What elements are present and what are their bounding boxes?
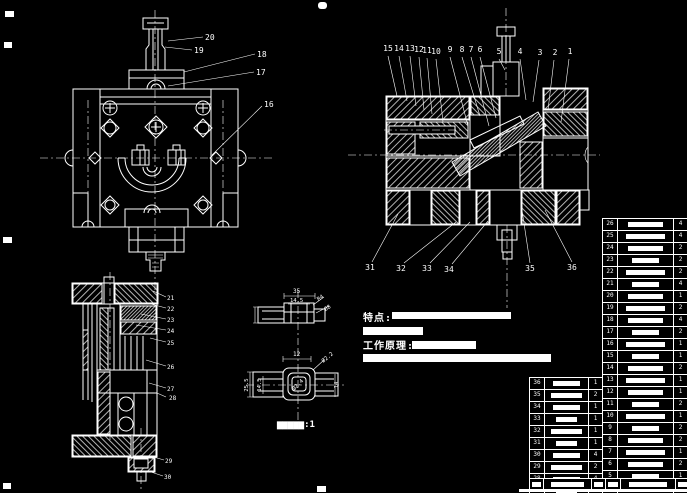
registration-mark (317, 486, 326, 492)
dim-height: 25.5 (244, 378, 250, 391)
detail-view-bottom: 12 Ø2.2 25.5 14.5 14 Ø2.4 ▆▆▆▆▆:1 (244, 348, 344, 430)
registration-mark (3, 237, 12, 243)
callout-24: 24 (167, 328, 175, 335)
bom-row: 21 4 (602, 278, 687, 291)
bom-row: 7 1 (602, 446, 687, 459)
bom-qty: 2 (588, 390, 602, 401)
dim-inner-height: 14.5 (257, 378, 263, 391)
bom-part-number: 13 (603, 375, 618, 386)
bom-part-name-blob (618, 351, 673, 362)
bom-part-name-blob (618, 315, 673, 326)
bom-qty: 4 (588, 450, 602, 461)
callout-6: 6 (478, 45, 483, 54)
redacted-text-bar (412, 341, 476, 349)
bom-row: 31 1 (529, 437, 603, 450)
bom-part-number: 20 (603, 291, 618, 302)
dim-width: 12 (293, 351, 301, 358)
callout-15: 15 (383, 44, 393, 53)
bom-part-name-blob (545, 414, 588, 425)
bom-part-name-blob (618, 219, 673, 230)
redacted-text-bar (392, 312, 511, 319)
bom-row: 32 1 (529, 425, 603, 438)
callout-27: 27 (167, 386, 175, 393)
title-block-frame-edge (519, 489, 687, 492)
bom-part-name-blob (618, 231, 673, 242)
bom-qty: 1 (673, 375, 687, 386)
bom-table-right: 26 4 25 4 24 2 23 2 22 (602, 219, 687, 493)
bom-qty: 2 (673, 303, 687, 314)
bom-part-number: 17 (603, 327, 618, 338)
bom-part-number: 25 (603, 231, 618, 242)
bom-qty: 2 (673, 255, 687, 266)
bom-part-name-blob (545, 378, 588, 389)
bom-part-name-blob (618, 303, 673, 314)
bom-part-number: 9 (603, 423, 618, 434)
bom-row: 14 2 (602, 362, 687, 375)
callout-2: 2 (553, 48, 558, 57)
bom-qty: 4 (673, 315, 687, 326)
bom-part-name-blob (618, 291, 673, 302)
bom-qty: 1 (673, 411, 687, 422)
bom-qty: 4 (673, 279, 687, 290)
bom-part-number: 11 (603, 399, 618, 410)
bom-row: 16 1 (602, 338, 687, 351)
bom-qty: 2 (673, 327, 687, 338)
callout-34: 34 (444, 265, 454, 274)
callout-5: 5 (497, 47, 502, 56)
bom-part-name-blob (618, 279, 673, 290)
bom-row: 6 2 (602, 458, 687, 471)
bom-part-name-blob (618, 375, 673, 386)
notes: 特点: 工作原理: (363, 311, 551, 362)
bom-part-name-blob (618, 459, 673, 470)
bom-row: 22 2 (602, 266, 687, 279)
bom-part-name-blob (618, 435, 673, 446)
bom-part-number: 18 (603, 315, 618, 326)
bom-part-name-blob (618, 447, 673, 458)
detail-view-top: 35 14.5 R4 Ø8 (253, 288, 332, 345)
bom-qty: 1 (588, 378, 602, 389)
dim-depth: 14 (334, 381, 340, 388)
bom-row: 29 2 (529, 461, 603, 474)
bom-part-number: 29 (530, 462, 545, 473)
bom-row: 20 1 (602, 290, 687, 303)
bom-part-number: 30 (530, 450, 545, 461)
bom-qty: 1 (673, 447, 687, 458)
callout-33: 33 (422, 264, 432, 273)
redacted-text-bar (363, 354, 551, 362)
callout-14: 14 (394, 44, 404, 53)
callout-23: 23 (167, 317, 175, 324)
registration-mark (3, 483, 11, 489)
callout-1: 1 (568, 47, 573, 56)
bom-row: 17 2 (602, 326, 687, 339)
bom-part-name-blob (545, 438, 588, 449)
bom-part-number: 36 (530, 378, 545, 389)
bom-qty: 2 (673, 459, 687, 470)
bom-row: 11 2 (602, 398, 687, 411)
bom-part-number: 22 (603, 267, 618, 278)
bom-qty: 1 (588, 426, 602, 437)
notes-feature-label: 特点: (363, 311, 392, 324)
callout-22: 22 (167, 306, 175, 313)
dim-bore: Ø2.4 (291, 377, 306, 392)
bom-part-name-blob (545, 426, 588, 437)
bom-qty: 2 (673, 243, 687, 254)
callout-8: 8 (460, 45, 465, 54)
bom-part-name-blob (618, 399, 673, 410)
bom-row: 13 1 (602, 374, 687, 387)
callout-9: 9 (448, 45, 453, 54)
bom-qty: 1 (588, 414, 602, 425)
registration-mark (4, 42, 12, 48)
callout-19: 19 (194, 46, 204, 55)
bom-part-name-blob (618, 327, 673, 338)
callout-32: 32 (396, 264, 406, 273)
bom-row: 18 4 (602, 314, 687, 327)
bom-qty: 1 (673, 339, 687, 350)
bom-qty: 4 (673, 219, 687, 230)
bom-row: 34 1 (529, 401, 603, 414)
bom-part-number: 15 (603, 351, 618, 362)
callout-7: 7 (469, 45, 474, 54)
bom-part-number: 33 (530, 414, 545, 425)
bom-row: 35 2 (529, 389, 603, 402)
bom-row: 25 4 (602, 230, 687, 243)
bom-part-name-blob (618, 339, 673, 350)
callout-30: 30 (164, 474, 172, 481)
bom-part-number: 35 (530, 390, 545, 401)
bom-part-number: 23 (603, 255, 618, 266)
callout-10: 10 (431, 47, 441, 56)
notes-principle-label: 工作原理: (363, 339, 414, 352)
bom-part-number: 8 (603, 435, 618, 446)
bom-qty: 1 (588, 438, 602, 449)
bom-qty: 1 (673, 291, 687, 302)
main-section-view: 15 14 13 12 11 10 9 8 7 6 5 4 3 2 1 31 3… (348, 8, 600, 308)
bom-qty: 2 (673, 435, 687, 446)
bom-part-number: 10 (603, 411, 618, 422)
bom-row: 26 4 (602, 218, 687, 231)
bom-row: 12 1 (602, 386, 687, 399)
bom-qty: 2 (673, 267, 687, 278)
bom-row: 15 1 (602, 350, 687, 363)
bom-row: 24 2 (602, 242, 687, 255)
bom-row: 8 2 (602, 434, 687, 447)
bom-part-name-blob (545, 450, 588, 461)
bom-part-number: 14 (603, 363, 618, 374)
bom-part-number: 32 (530, 426, 545, 437)
bom-qty: 2 (673, 363, 687, 374)
callout-4: 4 (518, 47, 523, 56)
bom-row: 30 4 (529, 449, 603, 462)
bom-row: 9 2 (602, 422, 687, 435)
bom-row: 19 2 (602, 302, 687, 315)
bom-row: 23 2 (602, 254, 687, 267)
side-section-view: 21 22 23 24 25 26 27 28 29 30 (72, 272, 177, 490)
bom-part-name-blob (618, 255, 673, 266)
bom-qty: 2 (588, 462, 602, 473)
bom-part-number: 21 (603, 279, 618, 290)
bom-part-number: 19 (603, 303, 618, 314)
callout-35: 35 (525, 264, 535, 273)
bom-part-number: 12 (603, 387, 618, 398)
bom-part-name-blob (618, 363, 673, 374)
callout-17: 17 (256, 68, 266, 77)
bom-part-name-blob (618, 267, 673, 278)
bom-row: 33 1 (529, 413, 603, 426)
bom-row: 36 1 (529, 377, 603, 390)
bom-part-name-blob (618, 243, 673, 254)
bom-part-name-blob (545, 462, 588, 473)
dim-hole: Ø2.2 (320, 351, 335, 365)
registration-mark (318, 2, 327, 9)
callout-16: 16 (264, 100, 274, 109)
bom-qty: 1 (588, 402, 602, 413)
bom-part-name-blob (545, 390, 588, 401)
callout-20: 20 (205, 33, 215, 42)
callout-36: 36 (567, 263, 577, 272)
bom-qty: 2 (673, 423, 687, 434)
bom-part-number: 26 (603, 219, 618, 230)
plan-view: 20 19 18 17 16 (40, 10, 274, 292)
detail-caption-blob: ▆▆▆▆▆:1 (276, 420, 315, 430)
dim-hole: Ø8 (323, 303, 332, 312)
callout-25: 25 (167, 340, 175, 347)
bom-part-name-blob (618, 423, 673, 434)
bom-part-name-blob (545, 402, 588, 413)
bom-part-number: 16 (603, 339, 618, 350)
bom-part-number: 31 (530, 438, 545, 449)
bom-part-name-blob (618, 411, 673, 422)
bom-part-number: 34 (530, 402, 545, 413)
cad-canvas[interactable]: 20 19 18 17 16 (0, 0, 687, 493)
bom-part-number: 24 (603, 243, 618, 254)
bom-part-number: 6 (603, 459, 618, 470)
callout-31: 31 (365, 263, 375, 272)
bom-qty: 4 (673, 231, 687, 242)
callout-29: 29 (165, 458, 173, 465)
callout-3: 3 (538, 48, 543, 57)
bom-part-name-blob (618, 387, 673, 398)
callout-18: 18 (257, 50, 267, 59)
bom-part-number: 7 (603, 447, 618, 458)
callout-28: 28 (169, 395, 177, 402)
dim-width: 35 (293, 288, 301, 295)
bom-qty: 1 (673, 351, 687, 362)
redacted-text-bar (363, 327, 423, 335)
registration-mark (5, 11, 14, 17)
bom-table-left: 36 1 35 2 34 1 33 1 32 (529, 378, 603, 493)
bom-row: 10 1 (602, 410, 687, 423)
callout-26: 26 (167, 364, 175, 371)
callout-21: 21 (167, 295, 175, 302)
bom-qty: 1 (673, 387, 687, 398)
bom-qty: 2 (673, 399, 687, 410)
dim-radius: R4 (316, 294, 325, 303)
